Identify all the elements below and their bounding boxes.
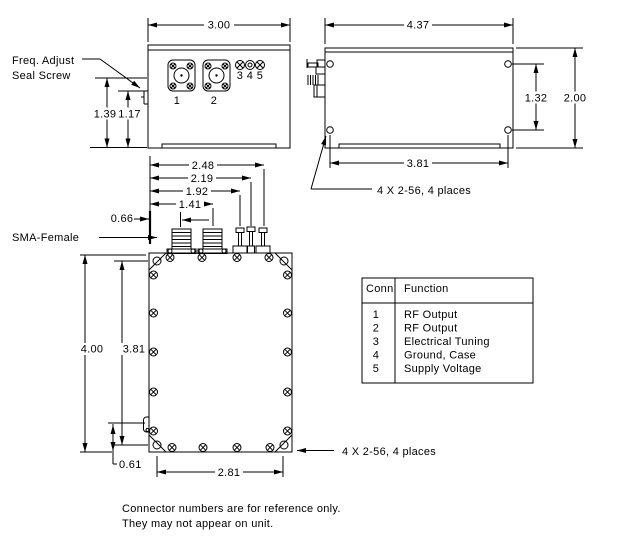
top-view [144,227,293,452]
side-screw-note: 4 X 2-56, 4 places [377,185,471,197]
side-view [307,48,513,148]
lid-screws [150,254,292,452]
connector2-pin [215,74,217,76]
dim-connector-height: 1.39 [94,109,117,121]
side-case-outline [325,48,513,148]
table-row4-function: Ground, Case [404,350,476,362]
freq-adjust-label-line2: Seal Screw [12,70,71,82]
dim-top-hole-spacing-v: 3.81 [123,344,146,356]
dim-side-height: 2.00 [564,93,587,105]
footnote-line2: They may not appear on unit. [122,518,274,530]
connector-feet [168,249,226,253]
side-screw-callout: 4 X 2-56, 4 places [311,136,471,197]
table-row5-conn: 5 [373,363,379,375]
top-view-dimensions: 4.00 3.81 0.61 2.81 [80,255,284,479]
dim-seal-screw-height: 1.17 [118,109,141,121]
table-row1-conn: 1 [373,309,379,321]
connector3-label: 3 [237,70,243,82]
top-pin-4 [247,227,255,253]
top-pin-3 [233,228,247,253]
table-row3-conn: 3 [373,336,379,348]
table-row1-function: RF Output [404,309,457,321]
top-seal-screw [146,429,149,432]
table-row3-function: Electrical Tuning [404,336,490,348]
dim-side-hole-spacing-v: 1.32 [525,93,548,105]
table-row2-conn: 2 [373,323,379,335]
connector2-label: 2 [211,95,217,107]
top-screw-note: 4 X 2-56, 4 places [342,446,436,458]
top-pin-5 [256,228,270,253]
dim-top-hole-spacing-h: 2.81 [218,467,241,479]
dim-side-hole-spacing-h: 3.81 [407,158,430,170]
dim-side-width: 4.37 [407,20,430,32]
table-row5-function: Supply Voltage [404,363,482,375]
connector1-label: 1 [174,95,180,107]
dim-conn2-offset: 1.41 [179,199,202,211]
dim-pin3-offset: 1.92 [186,186,209,198]
dim-conn1-offset: 0.66 [111,213,134,225]
front-seal-screw [141,91,149,104]
front-view: 1 2 3 4 5 [141,45,290,148]
side-sma-connector [307,59,325,97]
corner-screw-holes [153,257,288,449]
connector-table: Conn Function 1 RF Output 2 RF Output 3 … [362,278,533,383]
connector5-label: 5 [257,70,263,82]
corner-chamfer-tr [275,253,292,270]
dim-front-width: 3.00 [208,20,231,32]
dim-pin4-offset: 2.19 [191,173,214,185]
dim-top-height: 4.00 [81,344,104,356]
table-row4-conn: 4 [373,350,379,362]
dim-pin5-offset: 2.48 [192,160,215,172]
top-case-outline [149,253,292,452]
sma-female-label: SMA-Female [12,232,79,244]
connector4-label: 4 [247,70,253,82]
table-row2-function: RF Output [404,323,457,335]
front-base-lip [162,144,276,148]
drawing-canvas: 1 2 3 4 5 3.00 1.39 1.17 Freq. Adjust Se… [0,0,632,538]
engineering-drawing: 1 2 3 4 5 3.00 1.39 1.17 Freq. Adjust Se… [0,0,632,538]
side-dimensions: 4.37 1.32 2.00 3.81 [325,18,588,170]
corner-chamfer-tl [149,253,166,270]
footnote-line1: Connector numbers are for reference only… [122,503,341,515]
sma-female-callout: SMA-Female [12,232,157,244]
dim-seal-screw-offset: 0.61 [119,459,142,471]
table-header-function: Function [404,283,449,295]
top-dimension-stack: 2.48 2.19 1.92 1.41 0.66 [111,156,264,244]
freq-adjust-callout: Freq. Adjust Seal Screw [12,55,140,88]
side-screw-holes [327,61,512,134]
table-header-conn: Conn [366,283,394,295]
footnote: Connector numbers are for reference only… [122,503,341,530]
front-feedthrough-pins [236,61,265,70]
freq-adjust-label-line1: Freq. Adjust [12,55,74,67]
connector1-pin [180,74,182,76]
flange-screws [170,63,228,89]
top-screw-callout: 4 X 2-56, 4 places [297,446,436,458]
side-base-lip [339,144,500,148]
